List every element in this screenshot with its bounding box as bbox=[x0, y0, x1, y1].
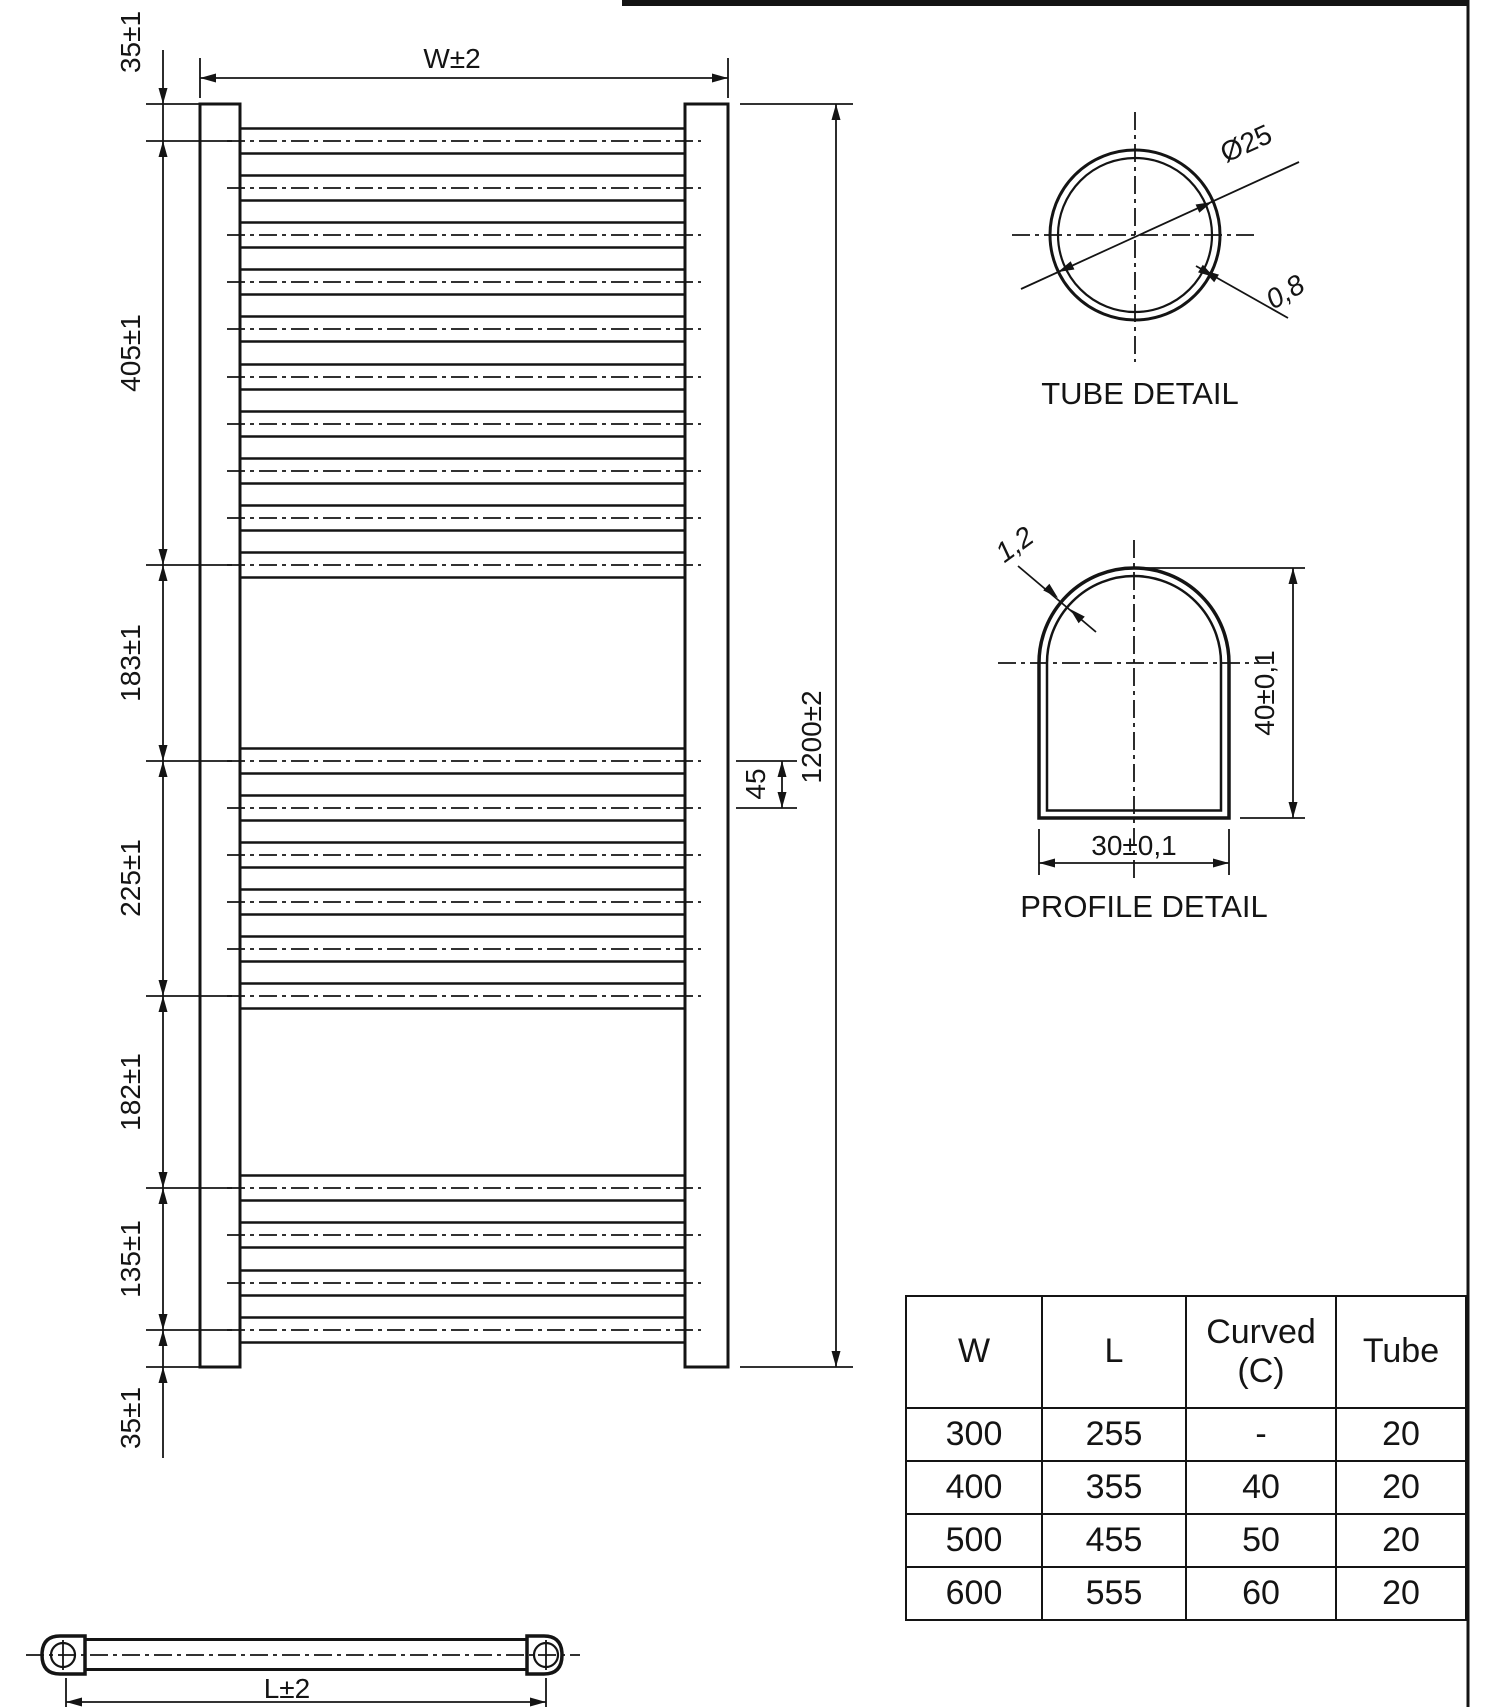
dimension-rung-spacing: 45 bbox=[736, 761, 797, 808]
technical-drawing-sheet: 35±1 405±1 183±1 225±1 182±1 135±1 35±1 … bbox=[0, 0, 1500, 1707]
tube-detail-title: TUBE DETAIL bbox=[1041, 376, 1239, 411]
right-rail bbox=[685, 104, 728, 1367]
dim-label-tube-diameter: Ø25 bbox=[1216, 118, 1277, 168]
cell-tube: 20 bbox=[1336, 1461, 1466, 1514]
profile-detail: 1,2 40±0,1 30±0,1 PROFILE DETAIL bbox=[990, 520, 1305, 924]
cell-curved: - bbox=[1186, 1408, 1336, 1461]
dim-label-tube-wall: 0,8 bbox=[1260, 268, 1310, 315]
dim-label-section-405: 405±1 bbox=[115, 314, 146, 392]
size-table-header-l: L bbox=[1042, 1296, 1186, 1408]
size-table-row: 600 555 60 20 bbox=[906, 1567, 1466, 1620]
dim-label-profile-wall: 1,2 bbox=[990, 520, 1040, 568]
dim-label-profile-width: 30±0,1 bbox=[1091, 830, 1176, 861]
cell-w: 500 bbox=[906, 1514, 1042, 1567]
dim-label-height: 1200±2 bbox=[796, 690, 827, 783]
dimension-length: L±2 bbox=[66, 1673, 546, 1707]
dim-label-gap-183: 183±1 bbox=[115, 624, 146, 702]
cell-curved: 50 bbox=[1186, 1514, 1336, 1567]
cell-tube: 20 bbox=[1336, 1408, 1466, 1461]
cell-l: 555 bbox=[1042, 1567, 1186, 1620]
size-table: W L Curved (C) Tube 300 255 - 20 400 355… bbox=[905, 1295, 1467, 1621]
cell-w: 600 bbox=[906, 1567, 1042, 1620]
size-table-header-curved: Curved (C) bbox=[1186, 1296, 1336, 1408]
tube-detail: Ø25 0,8 TUBE DETAIL bbox=[1012, 112, 1310, 411]
dimension-width: W±2 bbox=[200, 43, 728, 98]
size-table-row: 500 455 50 20 bbox=[906, 1514, 1466, 1567]
dim-label-section-225: 225±1 bbox=[115, 839, 146, 917]
size-table-header-w: W bbox=[906, 1296, 1042, 1408]
left-rail bbox=[200, 104, 240, 1367]
size-table-row: 400 355 40 20 bbox=[906, 1461, 1466, 1514]
profile-detail-title: PROFILE DETAIL bbox=[1020, 889, 1268, 924]
dim-label-section-135: 135±1 bbox=[115, 1220, 146, 1298]
side-view: L±2 bbox=[26, 1636, 580, 1707]
cell-l: 255 bbox=[1042, 1408, 1186, 1461]
dim-label-length: L±2 bbox=[264, 1673, 311, 1704]
cell-tube: 20 bbox=[1336, 1567, 1466, 1620]
dim-label-top-offset: 35±1 bbox=[115, 11, 146, 73]
cell-tube: 20 bbox=[1336, 1514, 1466, 1567]
cell-w: 400 bbox=[906, 1461, 1042, 1514]
dimension-chain-left: 35±1 405±1 183±1 225±1 182±1 135±1 35±1 bbox=[115, 11, 232, 1458]
dim-label-profile-height: 40±0,1 bbox=[1249, 650, 1280, 735]
cell-w: 300 bbox=[906, 1408, 1042, 1461]
size-table-header-tube: Tube bbox=[1336, 1296, 1466, 1408]
dim-label-bottom-offset: 35±1 bbox=[115, 1387, 146, 1449]
dim-label-gap-182: 182±1 bbox=[115, 1053, 146, 1131]
front-view: 35±1 405±1 183±1 225±1 182±1 135±1 35±1 … bbox=[115, 11, 853, 1458]
dim-label-width: W±2 bbox=[423, 43, 480, 74]
cell-curved: 40 bbox=[1186, 1461, 1336, 1514]
cell-curved: 60 bbox=[1186, 1567, 1336, 1620]
size-table-header-row: W L Curved (C) Tube bbox=[906, 1296, 1466, 1408]
dim-label-rung-spacing: 45 bbox=[740, 768, 771, 799]
dimension-height: 1200±2 bbox=[740, 104, 853, 1367]
rungs bbox=[227, 129, 701, 1343]
size-table-row: 300 255 - 20 bbox=[906, 1408, 1466, 1461]
cell-l: 455 bbox=[1042, 1514, 1186, 1567]
cell-l: 355 bbox=[1042, 1461, 1186, 1514]
